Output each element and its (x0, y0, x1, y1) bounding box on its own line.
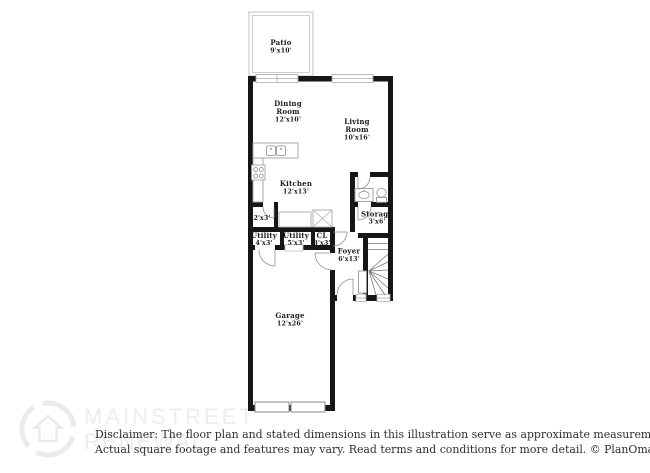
room-name: Patio (270, 38, 291, 47)
floorplan-svg: Patio 9'x10' Dining Room 12'x10' Living … (0, 0, 650, 473)
toilet-icon (377, 188, 387, 202)
room-dims: 6'x13' (338, 256, 360, 263)
wall-segment (371, 202, 393, 207)
room-label-utility-b: Utility 5'x3' (283, 231, 310, 247)
closet-shelves-x-icon (313, 210, 332, 227)
room-label-patio: Patio 9'x10' (270, 38, 292, 55)
washer-dryer-space (279, 212, 311, 227)
room-label-cl: CL 3'x3' (313, 231, 330, 247)
room-name: Foyer (338, 247, 361, 256)
room-dims: 12'x26' (277, 321, 303, 328)
room-name: Room (345, 125, 369, 134)
room-dims: 12'x10' (275, 117, 301, 124)
wall-segment (370, 172, 393, 177)
room-dims: 4'x3' (255, 240, 272, 247)
room-name: Room (276, 107, 300, 116)
room-name: Utility (251, 231, 278, 240)
garage-entry-door-arc (315, 253, 332, 270)
cl-door-arc (333, 232, 347, 246)
room-dims: 3'x3' (313, 240, 330, 247)
garage-door-panel (255, 402, 289, 412)
disclaimer-line1: Disclaimer: The floor plan and stated di… (95, 427, 647, 442)
room-name: Storage (361, 210, 393, 219)
wall-segment (248, 76, 253, 411)
disclaimer-line2: Actual square footage and features may v… (95, 442, 647, 457)
entry-door-opening (337, 294, 353, 302)
stove-icon (252, 165, 266, 180)
room-dims: 5'x3' (287, 240, 304, 247)
wall-segment (350, 202, 358, 207)
wall-segment (330, 295, 335, 411)
garage-door-panel (291, 402, 325, 412)
staircase (359, 244, 389, 296)
room-dims: 3'x6' (368, 219, 385, 226)
vanity-sink-icon (355, 189, 373, 202)
patio-sliding-door (256, 75, 298, 83)
bathroom-door-arc (358, 177, 370, 189)
room-dims: 9'x10' (270, 48, 292, 55)
room-name: Garage (275, 311, 305, 320)
room-dims: 2'x3' (253, 215, 270, 222)
wall-segment (388, 76, 393, 301)
floorplan-image: MAINSTREET RENEWAL (0, 0, 650, 473)
room-name: Utility (283, 231, 310, 240)
room-label-utility-a: Utility 4'x3' (251, 231, 278, 247)
room-label-kitchen: Kitchen 12'x13' (280, 179, 312, 196)
room-label-garage: Garage 12'x26' (275, 311, 305, 328)
room-label-closet-2x3: 2'x3' (253, 215, 270, 222)
room-label-foyer: Foyer 6'x13' (338, 247, 361, 264)
room-dims: 12'x13' (283, 189, 309, 196)
room-dims: 10'x16' (344, 135, 370, 142)
room-label-dining-room: Dining Room 12'x10' (274, 99, 302, 124)
living-room-window (332, 75, 373, 83)
front-door-arc (337, 279, 353, 295)
stair-newel (359, 271, 367, 293)
wall-segment (330, 270, 335, 295)
wall-segment (248, 202, 263, 207)
bathroom-fixtures (355, 188, 387, 202)
foyer-window (356, 294, 366, 301)
utility-door-arc (259, 250, 275, 266)
room-label-living-room: Living Room 10'x16' (344, 117, 370, 142)
disclaimer: Disclaimer: The floor plan and stated di… (95, 427, 647, 457)
room-name: Kitchen (280, 179, 312, 188)
room-name: CL (317, 231, 328, 240)
stair-window (377, 294, 390, 301)
